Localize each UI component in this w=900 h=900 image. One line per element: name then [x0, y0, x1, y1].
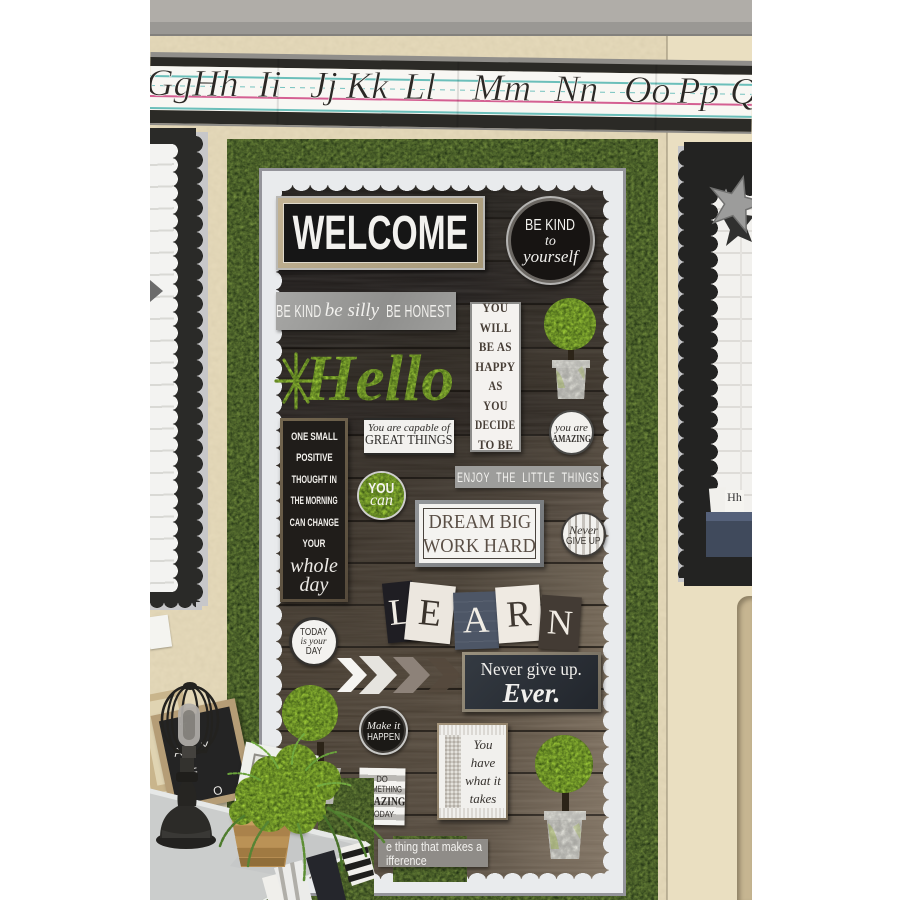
- svg-text:Hello: Hello: [303, 342, 454, 415]
